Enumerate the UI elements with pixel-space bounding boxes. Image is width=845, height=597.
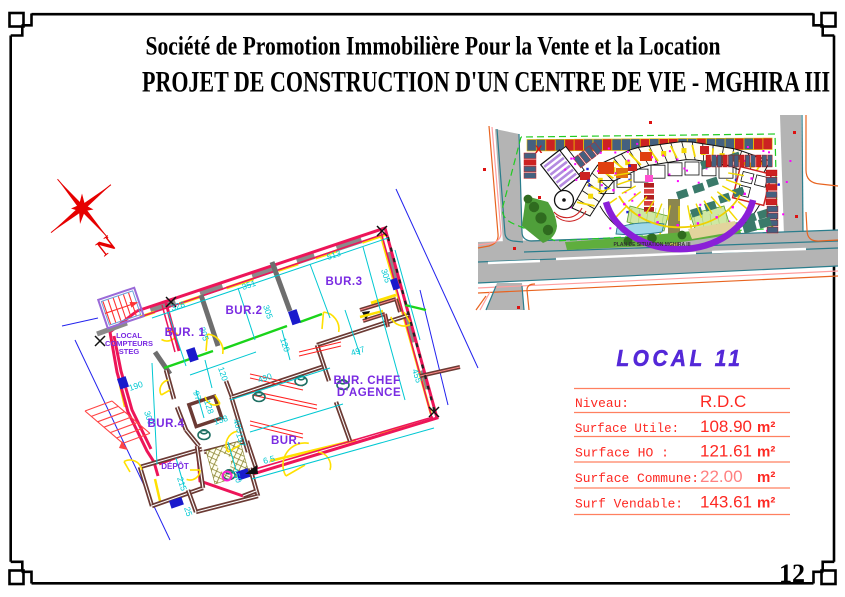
svg-text:BUR. 1: BUR. 1 — [165, 327, 206, 339]
svg-text:190: 190 — [127, 379, 144, 393]
svg-text:305: 305 — [261, 303, 275, 320]
svg-text:121.61: 121.61 — [700, 442, 752, 461]
svg-text:Société de Promotion Immobiliè: Société de Promotion Immobilière Pour la… — [146, 32, 721, 61]
svg-text:BUR.4: BUR.4 — [147, 418, 184, 430]
svg-text:128: 128 — [202, 398, 216, 415]
svg-text:215: 215 — [175, 475, 189, 492]
svg-text:R.D.C: R.D.C — [700, 392, 746, 411]
svg-text:143.61: 143.61 — [700, 493, 752, 512]
svg-text:Surface Commune:: Surface Commune: — [575, 471, 699, 486]
svg-text:Surface Utile:: Surface Utile: — [575, 421, 679, 436]
svg-text:120: 120 — [278, 336, 292, 353]
svg-text:BUR.: BUR. — [271, 435, 301, 447]
svg-text:BUR.2: BUR.2 — [225, 305, 262, 317]
svg-text:BUR.3: BUR.3 — [325, 276, 362, 288]
svg-text:138: 138 — [212, 413, 229, 427]
svg-text:120: 120 — [216, 365, 230, 382]
svg-text:25: 25 — [182, 505, 195, 517]
svg-text:108.90: 108.90 — [700, 417, 752, 436]
svg-text:Surface HO :: Surface HO : — [575, 446, 669, 461]
svg-text:PLAN DE SITUATION MGHIRA III: PLAN DE SITUATION MGHIRA III — [614, 242, 692, 248]
svg-text:LOCAL 11: LOCAL 11 — [617, 345, 744, 371]
svg-text:Niveau:: Niveau: — [575, 396, 629, 411]
svg-text:m²: m² — [757, 419, 775, 436]
svg-text:497: 497 — [349, 344, 366, 358]
svg-text:m²: m² — [757, 469, 775, 486]
svg-text:BUR. CHEF: BUR. CHEF — [333, 375, 400, 387]
svg-text:12: 12 — [779, 559, 805, 588]
svg-text:351: 351 — [240, 278, 257, 292]
svg-text:Surf Vendable:: Surf Vendable: — [575, 497, 683, 512]
svg-text:22.00: 22.00 — [700, 467, 743, 486]
svg-text:PROJET DE CONSTRUCTION D'UN CE: PROJET DE CONSTRUCTION D'UN CENTRE DE VI… — [142, 66, 830, 99]
svg-text:STEG: STEG — [119, 347, 140, 356]
svg-text:D'AGENCE: D'AGENCE — [337, 387, 401, 399]
svg-text:N: N — [92, 231, 121, 261]
svg-text:X: X — [535, 144, 543, 156]
svg-text:DÉPÔT: DÉPÔT — [161, 462, 189, 471]
svg-text:m²: m² — [757, 495, 775, 512]
svg-text:m²: m² — [757, 444, 775, 461]
